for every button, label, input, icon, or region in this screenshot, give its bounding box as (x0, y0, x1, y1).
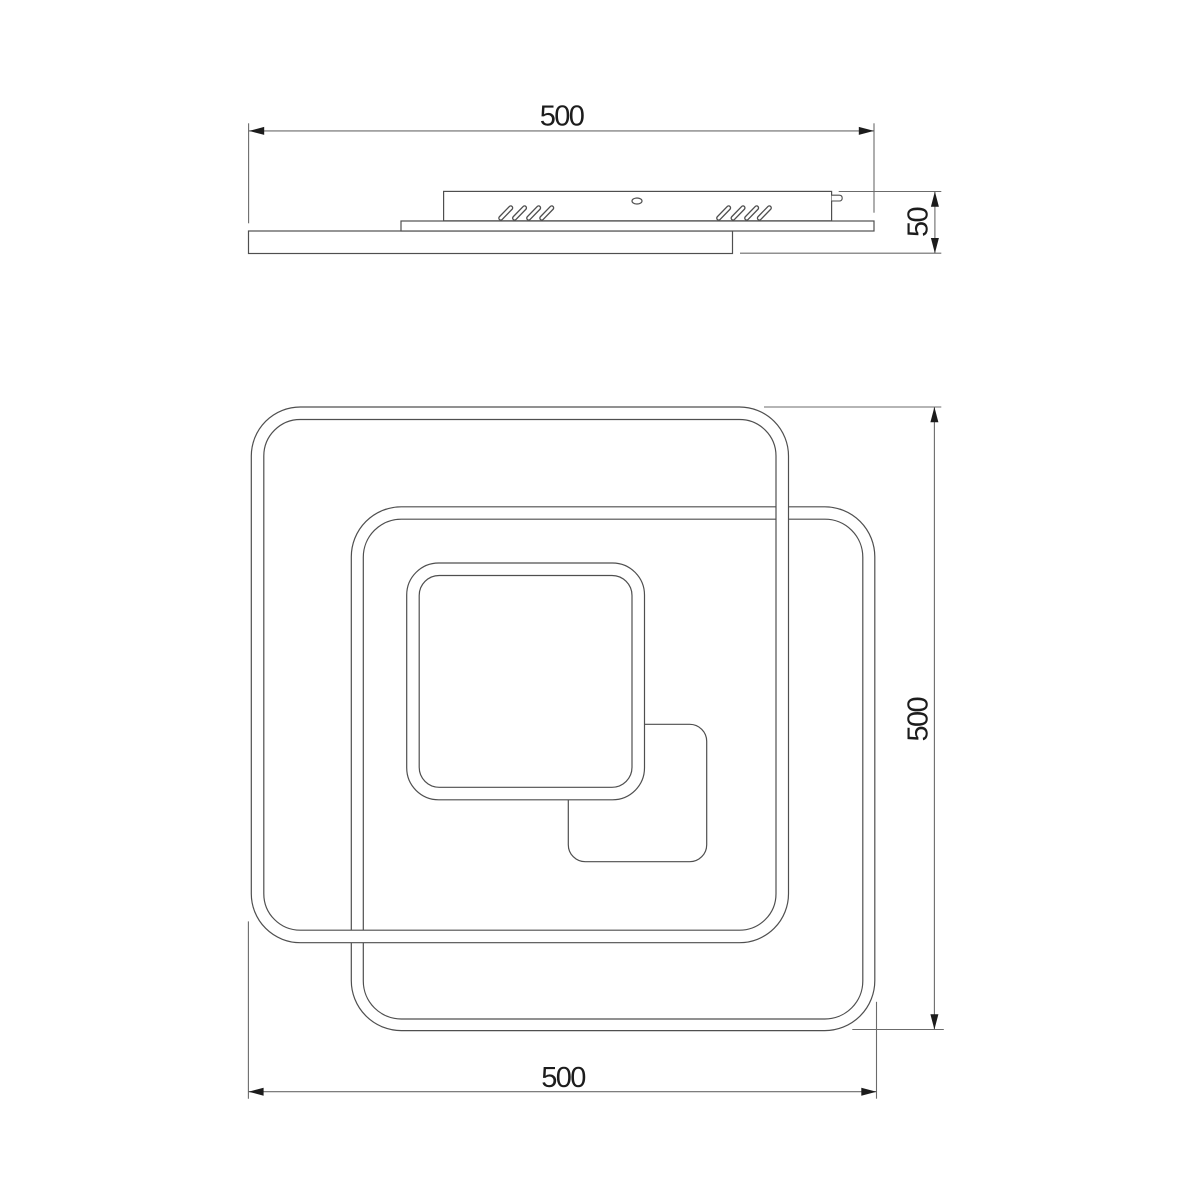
svg-text:500: 500 (540, 100, 584, 132)
svg-text:500: 500 (541, 1062, 585, 1094)
svg-text:500: 500 (903, 697, 935, 741)
svg-text:50: 50 (903, 208, 935, 238)
